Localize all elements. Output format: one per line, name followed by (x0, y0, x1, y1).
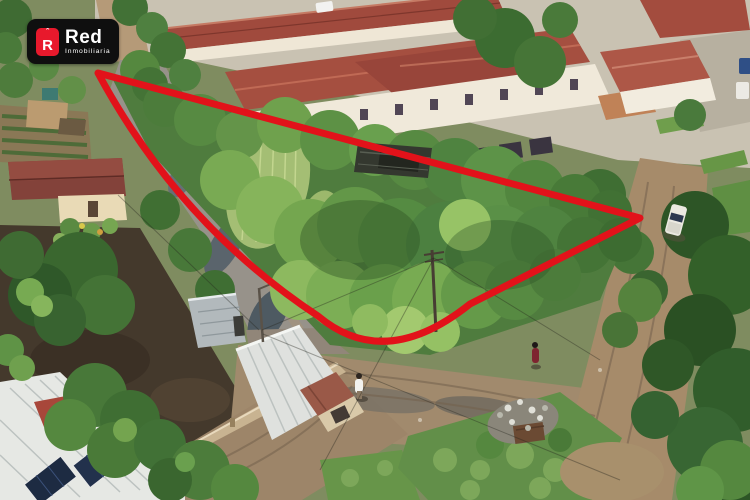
dirt-patch (560, 442, 664, 500)
teal-shack (42, 88, 58, 100)
logo-text: Red Inmobiliaria (65, 29, 111, 55)
storage-shed (188, 294, 246, 348)
small-hut (58, 118, 86, 136)
logo-icon-letter: R (42, 38, 53, 53)
white-car (736, 82, 749, 99)
blue-car (739, 58, 750, 74)
logo-brand-text: Red (65, 29, 111, 47)
logo-icon: ˆ R (36, 28, 59, 56)
logo-icon-hat: ˆ (36, 28, 59, 36)
aerial-photo: ˆ R Red Inmobiliaria (0, 0, 750, 500)
logo-tagline: Inmobiliaria (65, 48, 111, 55)
left-house-door (88, 201, 98, 217)
aerial-photo-scene (0, 0, 750, 500)
brand-logo: ˆ R Red Inmobiliaria (27, 19, 119, 64)
